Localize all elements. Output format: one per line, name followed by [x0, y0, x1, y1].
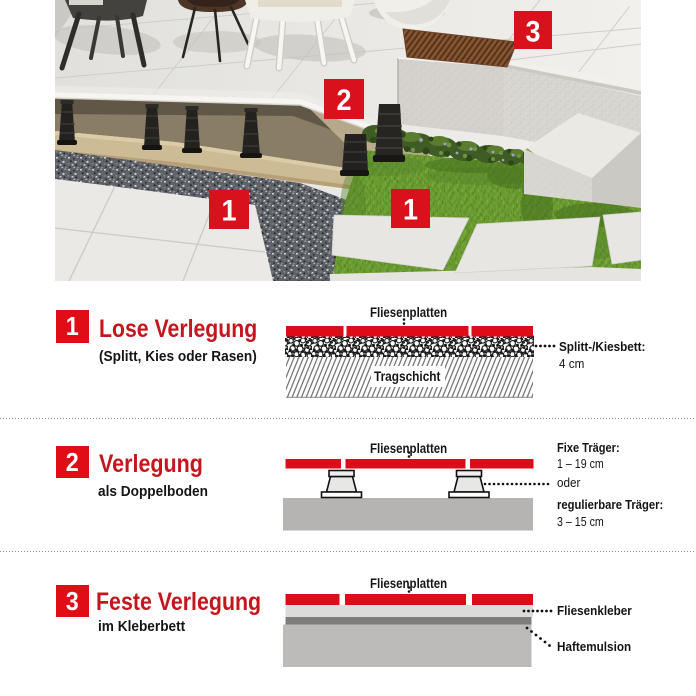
- svg-text:1: 1: [221, 194, 236, 228]
- svg-text:2: 2: [336, 84, 351, 118]
- svg-text:1: 1: [403, 193, 418, 227]
- svg-text:3: 3: [525, 15, 540, 49]
